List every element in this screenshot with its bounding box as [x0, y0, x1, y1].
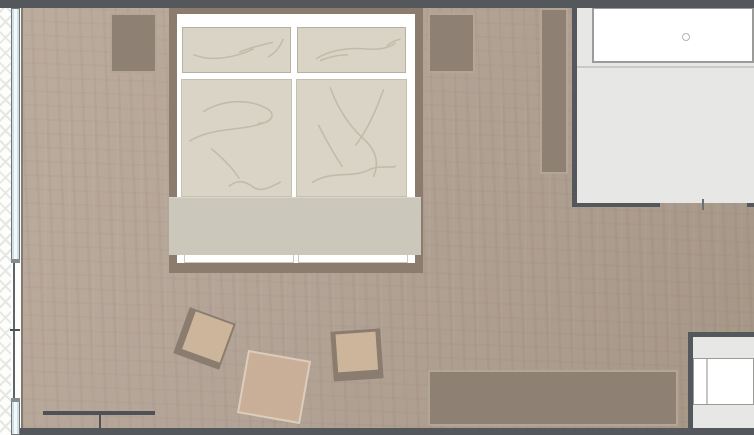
- wall-adjacent-room-left: [688, 332, 693, 428]
- floor-edge-shadow: [21, 8, 23, 428]
- pillow-crease-lines: [298, 28, 405, 72]
- wall-bathroom-left: [572, 8, 577, 207]
- duvet-right: [296, 79, 407, 197]
- nightstand-right: [428, 13, 475, 73]
- wardrobe: [540, 8, 568, 174]
- duvet-left: [181, 79, 292, 197]
- wall-bathroom-stub: [747, 203, 754, 207]
- radiator-tick: [99, 415, 101, 428]
- window-frame-cap: [11, 398, 20, 402]
- bathtub: [693, 358, 754, 405]
- pillow-left: [182, 27, 291, 73]
- washbasin-counter: [592, 7, 754, 63]
- wall-top: [0, 0, 754, 8]
- bathtub-inner-edge: [706, 359, 708, 404]
- window-glazing-top: [11, 8, 20, 263]
- floor-cushion-right: [330, 328, 383, 381]
- floor-cushion-middle: [237, 350, 311, 424]
- window-mullion-tick: [10, 329, 20, 331]
- wall-adjacent-room-top: [688, 332, 754, 337]
- bathroom-zone-divider: [577, 66, 754, 68]
- wall-bottom: [20, 428, 754, 435]
- pillow-crease-lines: [183, 28, 290, 72]
- window-glazing-bottom: [11, 398, 20, 435]
- duvet-crease-lines: [297, 80, 406, 196]
- basin-drain-icon: [682, 33, 690, 41]
- floor-plan: [0, 0, 754, 435]
- door-opening-tick: [702, 199, 704, 210]
- bed-throw-blanket: [169, 197, 421, 255]
- nightstand-left: [110, 13, 157, 73]
- duvet-crease-lines: [182, 80, 291, 196]
- pillow-right: [297, 27, 406, 73]
- wall-bathroom-bottom: [572, 203, 660, 207]
- sideboard-bench: [428, 370, 678, 426]
- outside-hatched-area: [0, 0, 11, 435]
